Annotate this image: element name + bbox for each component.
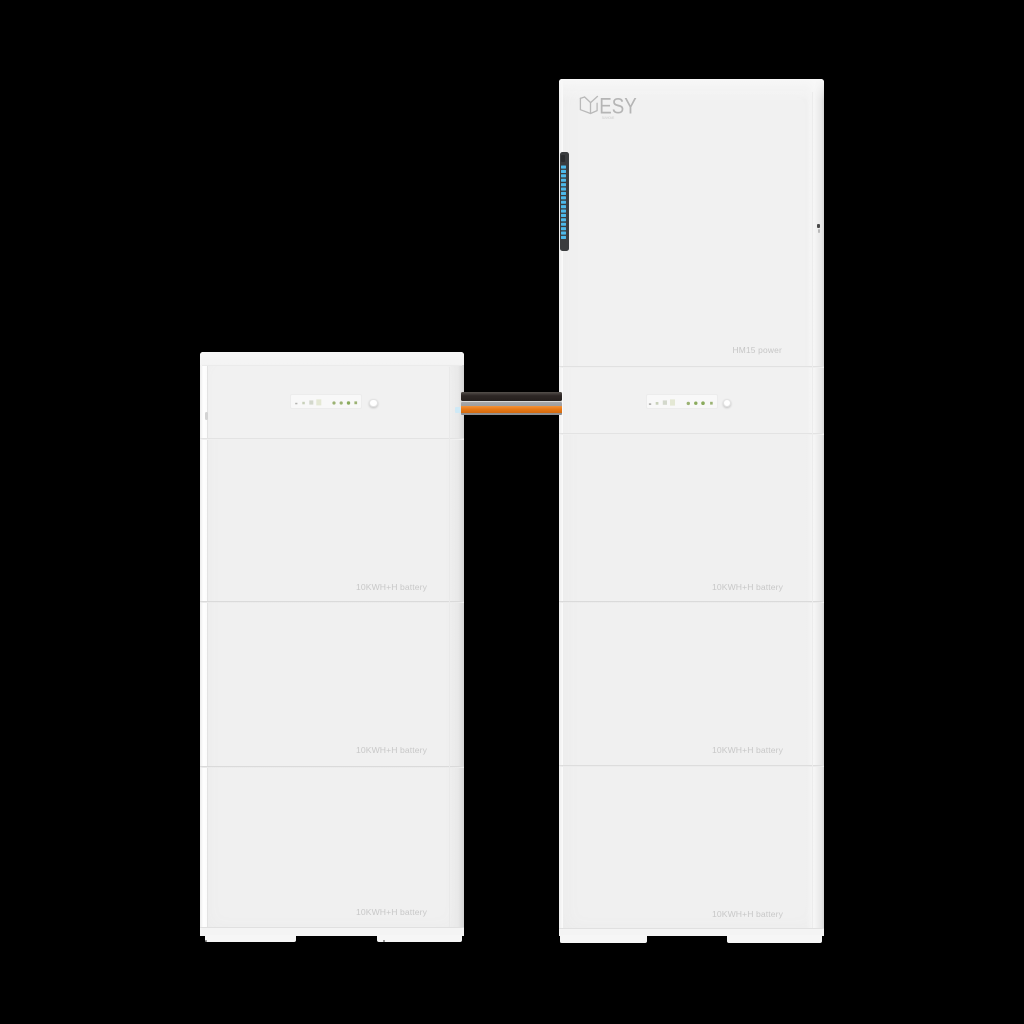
svg-text:SUNHOME: SUNHOME	[602, 116, 615, 120]
svg-text:ESY: ESY	[599, 94, 637, 119]
